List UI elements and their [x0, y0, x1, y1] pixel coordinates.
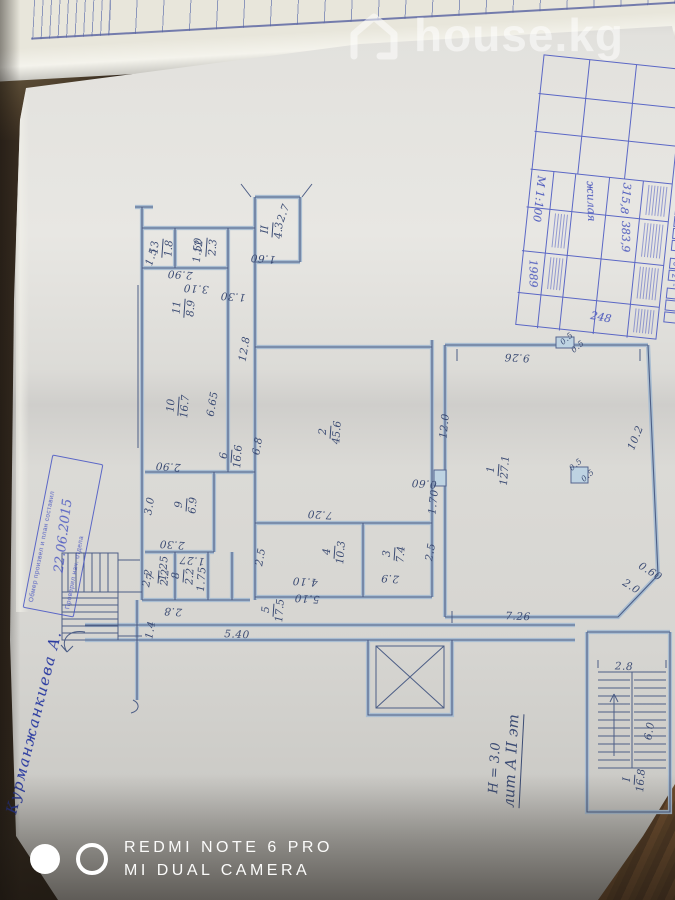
- title-block-table: 2-66-23-0023-0572-02- 315,8 383,9 ж: [515, 54, 675, 339]
- room-area: 16.8: [634, 768, 647, 792]
- room-label: 82.2: [170, 567, 195, 585]
- room-number: 1: [486, 463, 499, 477]
- room-label: I16.8: [621, 767, 647, 792]
- dim-label: 0.60: [411, 477, 437, 489]
- grid-line: [577, 60, 590, 173]
- room-number: II: [260, 222, 273, 237]
- room-area: 2.3: [206, 239, 219, 256]
- right-staircase: [598, 660, 666, 768]
- stamp-date: 22.06.2015: [51, 498, 75, 574]
- house-outline-icon: [344, 8, 404, 62]
- total-area-value: 383,9: [619, 221, 632, 253]
- room-label: 37.4: [381, 545, 406, 563]
- site-watermark: house.kg: [344, 8, 624, 62]
- room-area: 17.5: [273, 598, 286, 622]
- camera-brand-text: MI DUAL CAMERA: [124, 859, 333, 882]
- code-box: [664, 300, 675, 312]
- titleblock-print-blur: [644, 185, 667, 217]
- ceiling-height-note: Н = 3.0: [487, 742, 503, 794]
- code-box: [663, 312, 675, 324]
- dim-label: 2.8: [615, 661, 634, 672]
- room-label: 1016.7: [165, 393, 191, 418]
- dim-label: 2.90: [167, 268, 193, 280]
- dim-label: 5.10: [294, 592, 320, 604]
- dim-label: 7.26: [505, 611, 531, 622]
- grid-line: [534, 131, 675, 147]
- dim-label: 5.40: [224, 629, 250, 641]
- scale-value: М 1:100: [530, 175, 548, 223]
- purpose-value: жилая: [584, 181, 598, 222]
- dim-label: 7.20: [307, 508, 333, 520]
- dim-label: 2.9: [381, 572, 400, 584]
- room-number: I: [622, 774, 635, 785]
- room-area: 2.2: [183, 568, 196, 585]
- dim-label: 1.50: [192, 237, 204, 263]
- room-label: 1127.1: [485, 454, 511, 486]
- room-area: 6.9: [186, 497, 199, 514]
- room-label: 410.3: [321, 539, 347, 564]
- dim-label: 9.26: [504, 351, 530, 363]
- code-box: 2: [671, 240, 675, 252]
- room-label: 616.6: [218, 443, 244, 468]
- room-area: 16.7: [178, 394, 191, 418]
- dim-label: 1.25: [158, 555, 170, 581]
- titleblock-print-blur: [632, 308, 654, 334]
- room-area: 7.4: [394, 546, 407, 563]
- grid-line: [559, 173, 577, 330]
- dim-label: 2.90: [155, 460, 181, 472]
- room-area: 4.3: [272, 222, 285, 239]
- room-area: 45.6: [330, 420, 343, 444]
- titleblock-print-blur: [550, 213, 567, 248]
- code-box: 2: [668, 270, 675, 282]
- camera-model-text: REDMI NOTE 6 PRO: [124, 836, 333, 859]
- room-number: 2: [318, 425, 331, 439]
- titleblock-print-blur: [546, 257, 563, 290]
- titleblock-print-blur: [636, 266, 659, 300]
- dim-label: 1.30: [220, 290, 246, 302]
- outline-circle-icon: [76, 843, 108, 875]
- room-label: 118.9: [171, 297, 196, 318]
- room-label: 517.5: [260, 597, 286, 622]
- grid-line: [624, 65, 637, 178]
- room-number: 9: [174, 498, 187, 512]
- room-area: 127.1: [497, 455, 511, 486]
- room-number: 8: [171, 569, 184, 583]
- dim-label: 1.60: [250, 252, 276, 264]
- room-number: 3: [382, 547, 395, 561]
- dim-label: 12.0: [438, 413, 451, 439]
- dim-label: 1.70: [427, 489, 440, 515]
- room-label: II4.3: [259, 221, 284, 239]
- dim-label: 4.10: [292, 575, 318, 587]
- dim-label: 3.10: [183, 282, 209, 294]
- grid-line: [538, 93, 675, 109]
- camera-watermark: REDMI NOTE 6 PRO MI DUAL CAMERA: [30, 836, 333, 882]
- room-area: 10.3: [334, 540, 347, 564]
- code-box: 0: [669, 258, 675, 270]
- filled-circle-icon: [30, 844, 60, 874]
- dim-label: 1.75: [196, 566, 208, 592]
- room-area: 16.6: [231, 444, 244, 468]
- room-area: 8.9: [184, 300, 197, 317]
- room-number: 6: [219, 449, 232, 463]
- room-number: 4: [322, 545, 335, 559]
- dim-label: 2.8: [164, 605, 183, 617]
- dim-label: 2.30: [159, 538, 185, 550]
- room-number: 5: [261, 603, 274, 617]
- living-area-value: 315,8: [617, 182, 633, 215]
- site-watermark-text: house.kg: [414, 8, 624, 62]
- titleblock-print-blur: [640, 223, 663, 259]
- room-label: 245.6: [317, 419, 343, 444]
- elevator-shaft: [376, 646, 444, 708]
- photo-canvas: 1 5 1 8 6 2 6 II4.3 122.3 131.8 118.9 10…: [0, 0, 675, 900]
- room-label: 96.9: [173, 496, 198, 514]
- room-area: 1.8: [162, 240, 175, 257]
- year-value: 1989: [527, 259, 540, 287]
- code-box: [666, 288, 675, 300]
- dim-label: 1.27: [179, 554, 205, 566]
